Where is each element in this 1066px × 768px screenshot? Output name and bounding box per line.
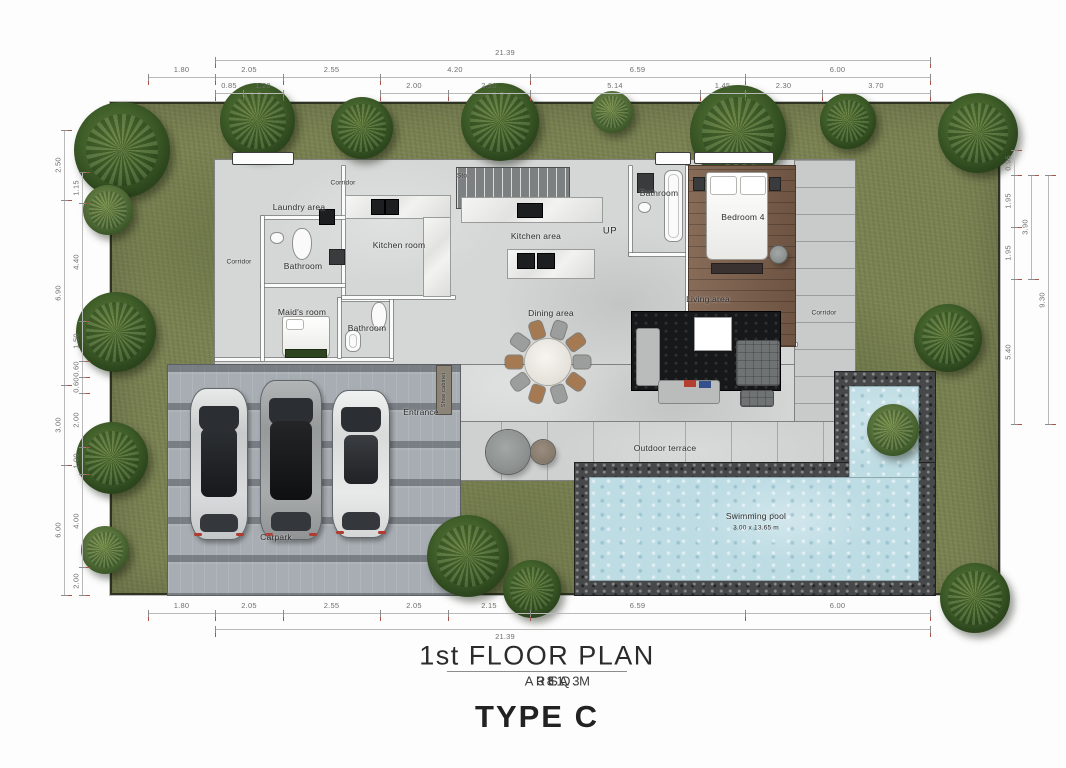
- pillow: [740, 176, 766, 195]
- dimension-label: 2.05: [241, 601, 256, 610]
- room-label-pool-size: 3.00 x 13.65 m: [733, 525, 779, 532]
- dimension-tick: [1011, 150, 1018, 151]
- dimension-tick-accent: [448, 617, 449, 621]
- dimension-line: [215, 629, 930, 630]
- sink: [638, 202, 651, 213]
- dimension-tick-accent: [86, 172, 90, 173]
- palm-tree: [940, 563, 1010, 633]
- dimension-tick: [930, 626, 931, 633]
- dimension-label: 4.40: [72, 254, 81, 269]
- dimension-tick: [243, 90, 244, 97]
- dimension-tick: [1028, 279, 1035, 280]
- dimension-tick: [380, 90, 381, 97]
- room-label-bathroom: Bathroom: [284, 261, 322, 271]
- dimension-tick-accent: [215, 617, 216, 621]
- dimension-line: [82, 203, 83, 321]
- dimension-tick-accent: [215, 81, 216, 85]
- room-label-kitchen-room: Kitchen room: [373, 240, 425, 250]
- room-label-dining-area: Dining area: [528, 308, 574, 318]
- dimension-tick: [79, 474, 86, 475]
- dimension-line: [1014, 175, 1015, 227]
- dimension-tick: [79, 321, 86, 322]
- dimension-tick: [1045, 424, 1052, 425]
- room-label-bathroom: Bathroom: [640, 188, 678, 198]
- room-label-kitchen-area: Kitchen area: [511, 231, 561, 241]
- dimension-line: [283, 613, 380, 614]
- dimension-line: [745, 77, 930, 78]
- footstool: [740, 390, 774, 407]
- area-unit: SQ.M: [549, 674, 592, 689]
- wall: [629, 253, 689, 256]
- dimension-tick: [61, 465, 68, 466]
- dimension-tick-accent: [86, 393, 90, 394]
- shower-tray: [345, 330, 361, 352]
- dimension-line: [1031, 175, 1032, 279]
- sofa: [636, 328, 660, 386]
- dimension-label: 1.15: [72, 180, 81, 195]
- car: [260, 380, 322, 540]
- dimension-tick: [61, 200, 68, 201]
- dimension-label: 3.90: [1021, 219, 1030, 234]
- dimension-line: [64, 385, 65, 465]
- dimension-line: [215, 93, 243, 94]
- dimension-tick-accent: [215, 64, 216, 68]
- page-title: 1st FLOOR PLAN: [419, 641, 655, 672]
- dimension-tick-accent: [380, 617, 381, 621]
- palm-tree: [331, 97, 393, 159]
- dimension-label: 6.90: [54, 285, 63, 300]
- palm-tree: [76, 292, 156, 372]
- dimension-label: 2.50: [54, 157, 63, 172]
- dimension-tick-accent: [380, 81, 381, 85]
- dimension-tick: [215, 626, 216, 633]
- area-subtitle: AREA 381.3 SQ.M: [525, 674, 549, 689]
- dimension-tick: [61, 595, 68, 596]
- dimension-label: 0.95: [1004, 155, 1013, 170]
- sink-icon: [538, 254, 554, 268]
- room-label-shoe-cabinet: Shoe cabinet: [441, 373, 447, 408]
- pillow: [286, 319, 304, 330]
- dimension-tick: [148, 610, 149, 617]
- wall: [261, 284, 345, 287]
- dimension-line: [380, 93, 448, 94]
- dimension-tick-accent: [530, 81, 531, 85]
- dimension-tick-accent: [1035, 175, 1039, 176]
- dimension-tick-accent: [86, 377, 90, 378]
- dimension-tick: [215, 57, 216, 64]
- dimension-tick: [283, 74, 284, 81]
- dimension-line: [148, 77, 215, 78]
- dimension-line: [1048, 175, 1049, 424]
- dimension-label: 2.55: [324, 65, 339, 74]
- dimension-label: 21.39: [495, 48, 515, 57]
- dimension-tick: [700, 90, 701, 97]
- dimension-tick: [283, 90, 284, 97]
- dimension-line: [82, 474, 83, 567]
- dimension-tick-accent: [86, 447, 90, 448]
- palm-tree: [74, 102, 170, 198]
- kitchen-counter: [424, 218, 450, 296]
- dimension-label: 6.59: [630, 65, 645, 74]
- dimension-tick: [79, 361, 86, 362]
- dimension-tick: [148, 74, 149, 81]
- dimension-label: 0.60: [72, 377, 81, 392]
- room-label-maids-room: Maid's room: [278, 307, 326, 317]
- plan-type-title: TYPE C: [475, 699, 599, 735]
- dimension-tick-accent: [930, 81, 931, 85]
- dimension-label: 1.95: [1004, 193, 1013, 208]
- room-label-up: UP: [603, 226, 617, 237]
- shrub: [591, 91, 633, 133]
- dimension-line: [215, 77, 283, 78]
- room-label-living-area: Living area: [686, 294, 730, 304]
- washer-icon: [320, 210, 334, 224]
- room-label-corridor: Corridor: [226, 259, 251, 266]
- dimension-tick-accent: [86, 595, 90, 596]
- dimension-line: [215, 613, 283, 614]
- dimension-line: [1014, 227, 1015, 279]
- dimension-tick-accent: [930, 64, 931, 68]
- dimension-label: 6.59: [630, 601, 645, 610]
- dimension-tick-accent: [1035, 279, 1039, 280]
- dimension-line: [530, 613, 745, 614]
- pillow-blue: [699, 381, 711, 388]
- palm-tree: [76, 422, 148, 494]
- dimension-tick: [215, 90, 216, 97]
- dimension-tick: [930, 57, 931, 64]
- dining-chair: [506, 356, 523, 369]
- dimension-label: 1.20: [255, 81, 270, 90]
- floor-plan-sheet: Corridor Laundry area Bathroom Kitchen r…: [0, 0, 1066, 768]
- room-label-swimming-pool: Swimming pool: [726, 511, 786, 521]
- dimension-label: 2.15: [481, 601, 496, 610]
- dimension-tick-accent: [243, 97, 244, 101]
- dimension-tick: [1011, 227, 1018, 228]
- dimension-tick: [79, 172, 86, 173]
- palm-tree: [461, 83, 539, 161]
- pillow: [710, 176, 737, 195]
- kitchen-counter: [346, 196, 450, 218]
- dimension-tick-accent: [530, 617, 531, 621]
- dimension-tick: [930, 610, 931, 617]
- dimension-tick-accent: [930, 617, 931, 621]
- dimension-tick: [79, 447, 86, 448]
- dimension-tick-accent: [215, 633, 216, 637]
- wall: [338, 298, 341, 358]
- dimension-tick: [215, 74, 216, 81]
- floor-mat: [286, 350, 326, 357]
- dimension-tick: [283, 610, 284, 617]
- dimension-label: 2.05: [406, 601, 421, 610]
- dimension-line: [82, 321, 83, 361]
- dimension-label: 2.00: [72, 412, 81, 427]
- room-label-corridor: Corridor: [330, 180, 355, 187]
- dimension-tick-accent: [68, 200, 72, 201]
- car: [332, 390, 390, 538]
- shrub: [83, 185, 133, 235]
- dimension-tick: [448, 610, 449, 617]
- room-label-bathroom: Bathroom: [348, 323, 386, 333]
- dimension-tick-accent: [1052, 175, 1056, 176]
- dimension-tick: [1011, 175, 1018, 176]
- dimension-tick: [380, 610, 381, 617]
- dimension-line: [82, 447, 83, 474]
- dimension-label: 3.70: [868, 81, 883, 90]
- dimension-tick: [79, 377, 86, 378]
- dining-table: [525, 339, 571, 385]
- dimension-tick: [79, 203, 86, 204]
- dimension-tick-accent: [86, 567, 90, 568]
- sink: [270, 232, 284, 244]
- dimension-label: 5.14: [607, 81, 622, 90]
- dimension-tick-accent: [530, 97, 531, 101]
- room-label-outdoor-terrace: Outdoor terrace: [634, 443, 697, 453]
- dimension-label: 1.45: [715, 81, 730, 90]
- palm-tree: [914, 304, 982, 372]
- dimension-line: [82, 567, 83, 595]
- palm-tree: [820, 93, 876, 149]
- dimension-label: 9.30: [1038, 292, 1047, 307]
- dimension-label: 2.00: [406, 81, 421, 90]
- shrub: [867, 404, 919, 456]
- dimension-tick: [1045, 175, 1052, 176]
- window: [694, 152, 774, 164]
- dimension-tick-accent: [930, 97, 931, 101]
- sink-icon: [518, 254, 534, 268]
- dimension-tick: [79, 567, 86, 568]
- lounge-daybed: [486, 430, 530, 474]
- dimension-tick: [930, 90, 931, 97]
- dimension-tick-accent: [148, 81, 149, 85]
- dimension-line: [82, 361, 83, 377]
- cooktop-icon: [518, 204, 542, 217]
- dimension-label: 2.20: [481, 81, 496, 90]
- stove-icon: [372, 200, 384, 214]
- dimension-label: 6.00: [830, 65, 845, 74]
- dimension-label: 6.00: [54, 522, 63, 537]
- wall: [629, 166, 632, 256]
- room-label-carpark: Carpark: [260, 532, 292, 542]
- dimension-label: 1.95: [1004, 245, 1013, 260]
- dimension-tick: [215, 610, 216, 617]
- dimension-label: 2.30: [776, 81, 791, 90]
- dimension-tick-accent: [68, 595, 72, 596]
- dimension-tick-accent: [700, 97, 701, 101]
- dimension-tick-accent: [1052, 424, 1056, 425]
- vanity: [330, 250, 344, 264]
- room-label-storage: Sto.: [457, 173, 469, 180]
- dimension-tick-accent: [745, 81, 746, 85]
- room-label-bedroom-4: Bedroom 4: [721, 212, 764, 222]
- dimension-tick: [380, 74, 381, 81]
- dimension-label: 3.00: [54, 417, 63, 432]
- dimension-tick: [530, 90, 531, 97]
- dimension-tick: [530, 74, 531, 81]
- dimension-line: [745, 93, 822, 94]
- room-label-corridor: Corridor: [811, 310, 836, 317]
- dimension-line: [243, 93, 283, 94]
- pillow-red: [684, 380, 696, 387]
- wall: [215, 358, 393, 361]
- dimension-line: [82, 393, 83, 447]
- dimension-tick-accent: [68, 130, 72, 131]
- dimension-line: [700, 93, 745, 94]
- dimension-tick: [1028, 175, 1035, 176]
- dimension-tick: [745, 90, 746, 97]
- dimension-tick-accent: [930, 633, 931, 637]
- dimension-tick-accent: [215, 97, 216, 101]
- dimension-line: [530, 93, 700, 94]
- dimension-tick-accent: [822, 97, 823, 101]
- dimension-tick-accent: [380, 97, 381, 101]
- dimension-tick-accent: [86, 321, 90, 322]
- oven-icon: [386, 200, 398, 214]
- dimension-tick-accent: [745, 617, 746, 621]
- palm-tree: [503, 560, 561, 618]
- window: [232, 152, 294, 165]
- wall: [342, 296, 455, 299]
- pouf: [770, 246, 787, 263]
- dimension-tick-accent: [283, 81, 284, 85]
- pouf: [531, 440, 555, 464]
- dimension-tick-accent: [86, 203, 90, 204]
- dimension-label: 4.20: [447, 65, 462, 74]
- dimension-line: [215, 60, 930, 61]
- car: [190, 388, 248, 540]
- dimension-line: [82, 377, 83, 393]
- room-label-laundry: Laundry area: [273, 202, 326, 212]
- dimension-tick: [1011, 424, 1018, 425]
- dimension-tick-accent: [283, 617, 284, 621]
- dimension-line: [448, 93, 530, 94]
- nightstand: [770, 178, 780, 190]
- dimension-tick: [1011, 279, 1018, 280]
- dimension-line: [380, 77, 530, 78]
- dimension-line: [82, 172, 83, 203]
- dimension-label: 0.85: [221, 81, 236, 90]
- dimension-tick: [530, 610, 531, 617]
- dimension-label: 2.05: [241, 65, 256, 74]
- dimension-label: 5.40: [1004, 344, 1013, 359]
- dimension-tick-accent: [86, 474, 90, 475]
- dimension-tick-accent: [1018, 279, 1022, 280]
- dimension-tick: [79, 393, 86, 394]
- bathtub: [664, 170, 683, 242]
- dimension-tick-accent: [448, 97, 449, 101]
- dimension-label: 1.80: [174, 65, 189, 74]
- dimension-tick-accent: [1018, 424, 1022, 425]
- dimension-tick: [745, 74, 746, 81]
- dimension-tick-accent: [1018, 175, 1022, 176]
- dimension-tick: [61, 385, 68, 386]
- palm-tree: [427, 515, 509, 597]
- dimension-line: [745, 613, 930, 614]
- title-underline: [447, 671, 627, 672]
- dimension-tick: [822, 90, 823, 97]
- dimension-tick-accent: [86, 361, 90, 362]
- dimension-tick: [448, 90, 449, 97]
- wall: [390, 298, 393, 358]
- dimension-label: 0.60: [72, 361, 81, 376]
- dining-chair: [574, 356, 591, 369]
- dimension-line: [148, 613, 215, 614]
- toilet: [292, 228, 312, 260]
- dimension-tick: [61, 130, 68, 131]
- dimension-line: [448, 613, 530, 614]
- dimension-line: [1014, 279, 1015, 424]
- dimension-line: [64, 465, 65, 595]
- dimension-label: 1.50: [72, 333, 81, 348]
- dimension-tick: [930, 74, 931, 81]
- dimension-tick-accent: [283, 97, 284, 101]
- dimension-line: [1014, 150, 1015, 175]
- dimension-line: [380, 613, 448, 614]
- room-label-entrance: Entrance: [403, 407, 439, 417]
- dimension-tick: [745, 610, 746, 617]
- window: [655, 152, 691, 165]
- dimension-tick-accent: [148, 617, 149, 621]
- bed-bench: [712, 264, 762, 273]
- dimension-line: [64, 200, 65, 385]
- dimension-label: 4.00: [72, 513, 81, 528]
- dimension-line: [64, 130, 65, 200]
- dimension-label: 2.55: [324, 601, 339, 610]
- dimension-label: 1.80: [174, 601, 189, 610]
- nightstand: [694, 178, 704, 190]
- dimension-line: [822, 93, 930, 94]
- dimension-tick-accent: [1018, 150, 1022, 151]
- dimension-label: 6.00: [830, 601, 845, 610]
- dimension-line: [530, 77, 745, 78]
- wall: [261, 216, 264, 361]
- dimension-label: 2.00: [72, 573, 81, 588]
- armchair: [736, 340, 780, 386]
- dimension-tick-accent: [745, 97, 746, 101]
- dimension-tick: [79, 595, 86, 596]
- dimension-label: 1.00: [72, 453, 81, 468]
- dimension-line: [283, 77, 380, 78]
- coffee-table: [695, 318, 731, 350]
